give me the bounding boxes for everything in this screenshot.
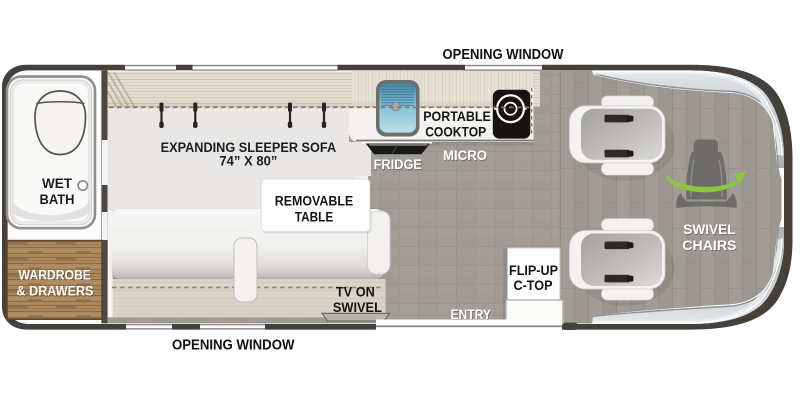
svg-text:OPENING WINDOW: OPENING WINDOW [172, 338, 295, 354]
svg-text:MICRO: MICRO [443, 148, 487, 163]
svg-text:TV ON: TV ON [336, 285, 375, 300]
svg-text:REMOVABLE: REMOVABLE [275, 194, 353, 209]
svg-text:& DRAWERS: & DRAWERS [17, 284, 94, 299]
svg-text:C-TOP: C-TOP [514, 278, 553, 293]
svg-text:FRIDGE: FRIDGE [374, 157, 422, 172]
svg-text:COOKTOP: COOKTOP [425, 125, 486, 140]
svg-text:TABLE: TABLE [295, 210, 334, 225]
svg-text:CHAIRS: CHAIRS [682, 238, 736, 253]
svg-text:SWIVEL: SWIVEL [333, 300, 382, 315]
svg-text:WET: WET [42, 176, 73, 191]
svg-text:74” X 80”: 74” X 80” [219, 154, 277, 169]
svg-text:WARDROBE: WARDROBE [19, 267, 92, 282]
svg-text:SWIVEL: SWIVEL [683, 222, 735, 237]
svg-text:FLIP-UP: FLIP-UP [509, 263, 558, 278]
svg-text:BATH: BATH [40, 192, 75, 207]
svg-text:PORTABLE: PORTABLE [423, 109, 491, 124]
svg-text:OPENING WINDOW: OPENING WINDOW [443, 47, 564, 63]
